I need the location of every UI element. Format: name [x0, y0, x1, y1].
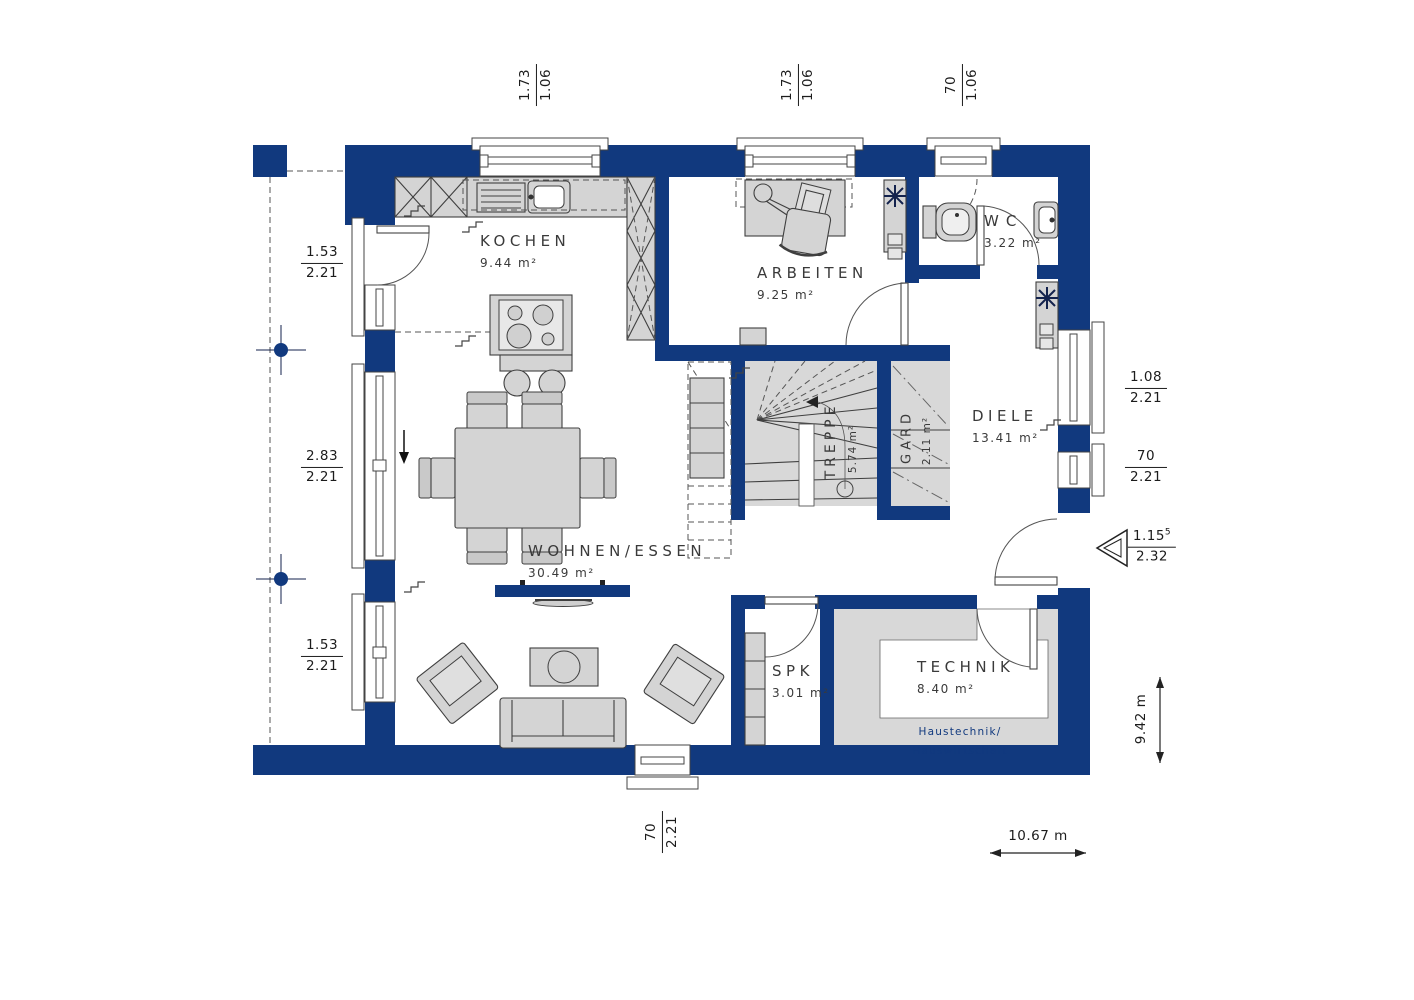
- overall-width-label: 10.67 m: [1008, 828, 1068, 844]
- toilet-tank: [923, 206, 936, 238]
- room-name: WC: [984, 212, 1042, 230]
- room-label-spk: SPK 3.01 m²: [772, 662, 830, 700]
- room-name: WOHNEN/ESSEN: [528, 542, 706, 560]
- dim-left-1: 1.53 2.21: [301, 244, 343, 282]
- room-area: 30.49 m²: [528, 566, 706, 580]
- room-area: 9.25 m²: [757, 288, 868, 302]
- room-name: TECHNIK: [917, 658, 1014, 676]
- room-name: KOCHEN: [480, 232, 570, 250]
- room-label-kochen: KOCHEN 9.44 m²: [480, 232, 570, 270]
- room-area: 8.40 m²: [917, 682, 1014, 696]
- dim-right-2: 70 2.21: [1125, 448, 1167, 486]
- room-area: 9.44 m²: [480, 256, 570, 270]
- room-name: ARBEITEN: [757, 264, 868, 282]
- tv-lowboard: [495, 580, 630, 607]
- room-label-gard: GARD: [900, 410, 915, 464]
- dim-right-1: 1.08 2.21: [1125, 369, 1167, 407]
- room-name: SPK: [772, 662, 830, 680]
- technik-note: Haustechnik/ Hauswirtschaft: [912, 723, 1007, 761]
- dim-bottom-1: 70 2.21: [643, 811, 681, 853]
- room-label-treppe: TREPPE: [823, 403, 839, 480]
- dim-top-2: 1.73 1.06: [779, 64, 817, 106]
- room-label-technik: TECHNIK 8.40 m²: [917, 658, 1014, 696]
- room-area-gard: 2.11 m²: [921, 417, 933, 465]
- dim-left-3: 1.53 2.21: [301, 637, 343, 675]
- sideboard-plant: [884, 180, 906, 259]
- entrance-marker: [1097, 530, 1127, 566]
- dining-table: [455, 428, 580, 528]
- room-label-wohnen: WOHNEN/ESSEN 30.49 m²: [528, 542, 706, 580]
- floor-plan-drawing: [0, 0, 1414, 1000]
- room-label-wc: WC 3.22 m²: [984, 212, 1042, 250]
- armchair: [643, 643, 725, 724]
- dining-table-set: [419, 392, 616, 564]
- overall-height-label: 9.42 m: [1133, 694, 1149, 745]
- room-area: 3.01 m²: [772, 686, 830, 700]
- kitchen-units: [395, 177, 655, 396]
- spk-door: [765, 597, 818, 657]
- survey-points: [256, 325, 306, 604]
- dim-right-3: 1.155 2.32: [1128, 528, 1176, 567]
- room-label-arbeiten: ARBEITEN 9.25 m²: [757, 264, 868, 302]
- dim-left-2: 2.83 2.21: [301, 448, 343, 486]
- dim-top-3: 70 1.06: [943, 64, 981, 106]
- terrace-door: [377, 226, 429, 285]
- pantry-shelf: [745, 633, 765, 745]
- room-area: 3.22 m²: [984, 236, 1042, 250]
- sofa: [500, 698, 626, 748]
- desk-chair: [778, 207, 833, 259]
- room-label-diele: DIELE 13.41 m²: [972, 407, 1039, 445]
- armchair: [416, 642, 499, 725]
- office-furniture: [736, 179, 906, 345]
- dim-top-1: 1.73 1.06: [517, 64, 555, 106]
- room-area-treppe: 5.74 m²: [847, 425, 859, 473]
- coffee-table: [530, 648, 598, 686]
- floor-plan-page: KOCHEN 9.44 m² ARBEITEN 9.25 m² WC 3.22 …: [0, 0, 1414, 1000]
- sideboard-plant: [1036, 282, 1058, 349]
- entrance-door: [995, 519, 1057, 585]
- kitchen-island: [490, 295, 572, 396]
- room-area: 13.41 m²: [972, 431, 1039, 445]
- shelf: [690, 378, 724, 478]
- section-arrow: [399, 430, 409, 464]
- room-name: DIELE: [972, 407, 1039, 425]
